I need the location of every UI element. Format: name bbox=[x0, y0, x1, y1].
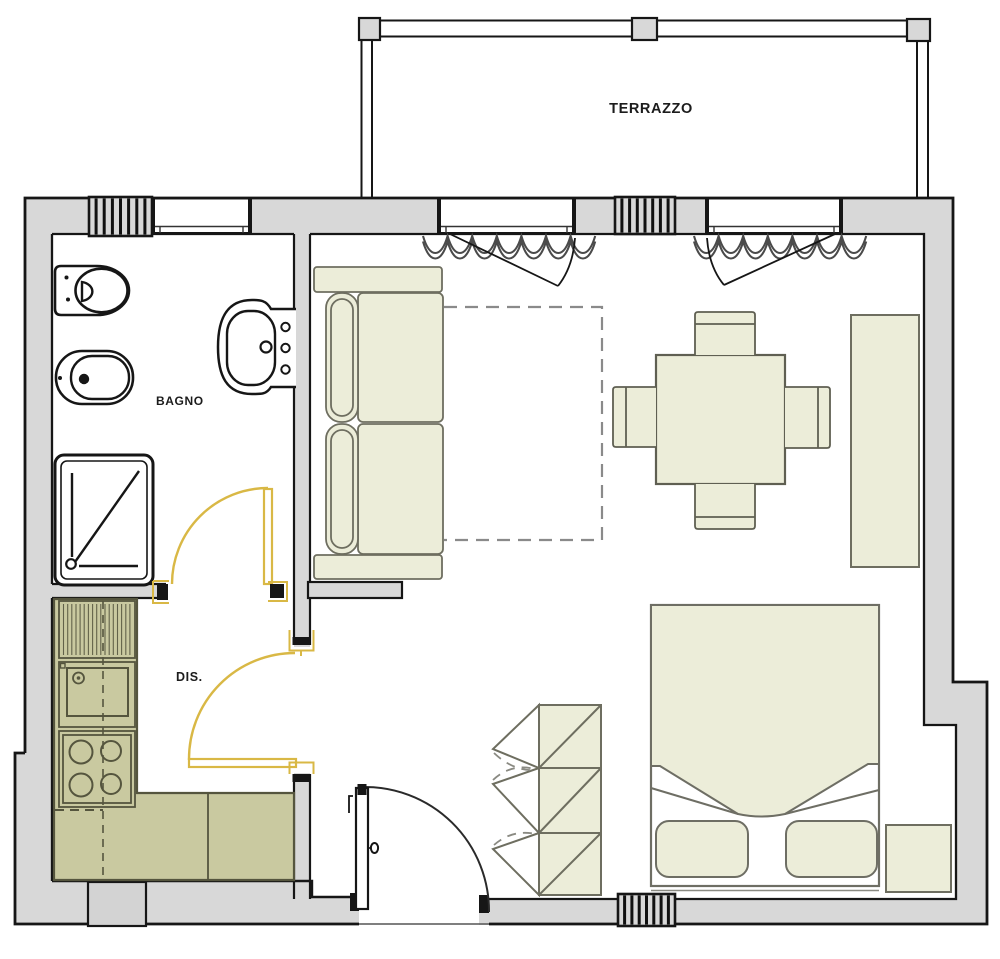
svg-text:BAGNO: BAGNO bbox=[156, 394, 204, 408]
svg-text:TERRAZZO: TERRAZZO bbox=[609, 101, 693, 117]
svg-text:DIS.: DIS. bbox=[176, 670, 203, 684]
